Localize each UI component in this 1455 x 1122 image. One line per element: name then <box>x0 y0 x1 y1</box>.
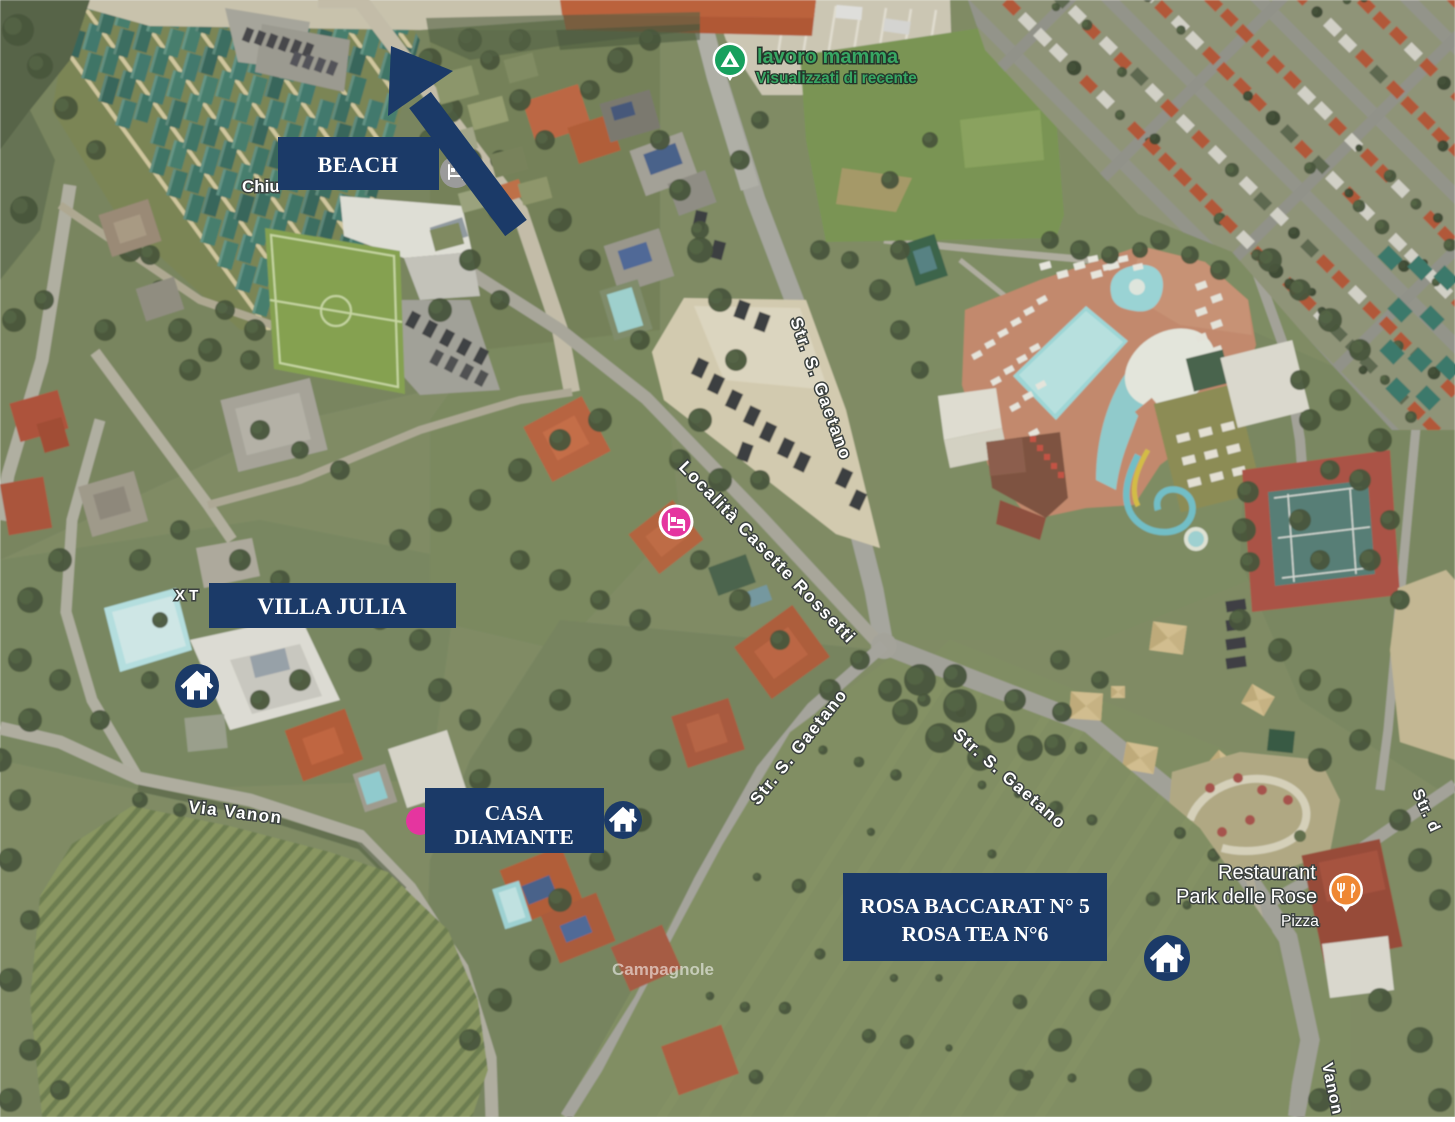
svg-text:Campagnole: Campagnole <box>612 960 714 979</box>
svg-text:BEACH: BEACH <box>318 152 399 177</box>
svg-text:Restaurant: Restaurant <box>1218 862 1316 884</box>
svg-text:VILLA JULIA: VILLA JULIA <box>257 594 407 620</box>
svg-text:X T: X T <box>175 587 198 604</box>
svg-text:DIAMANTE: DIAMANTE <box>454 825 573 849</box>
svg-text:Pizza: Pizza <box>1281 913 1319 930</box>
svg-text:ROSA BACCARAT N° 5: ROSA BACCARAT N° 5 <box>860 894 1089 918</box>
svg-text:Visualizzati di recente: Visualizzati di recente <box>756 70 917 87</box>
svg-text:Chiu: Chiu <box>242 177 280 196</box>
svg-text:lavoro mamma: lavoro mamma <box>757 46 899 68</box>
svg-text:Park delle Rose: Park delle Rose <box>1176 886 1317 908</box>
svg-text:CASA: CASA <box>485 801 544 825</box>
svg-text:ROSA TEA N°6: ROSA TEA N°6 <box>902 922 1049 946</box>
